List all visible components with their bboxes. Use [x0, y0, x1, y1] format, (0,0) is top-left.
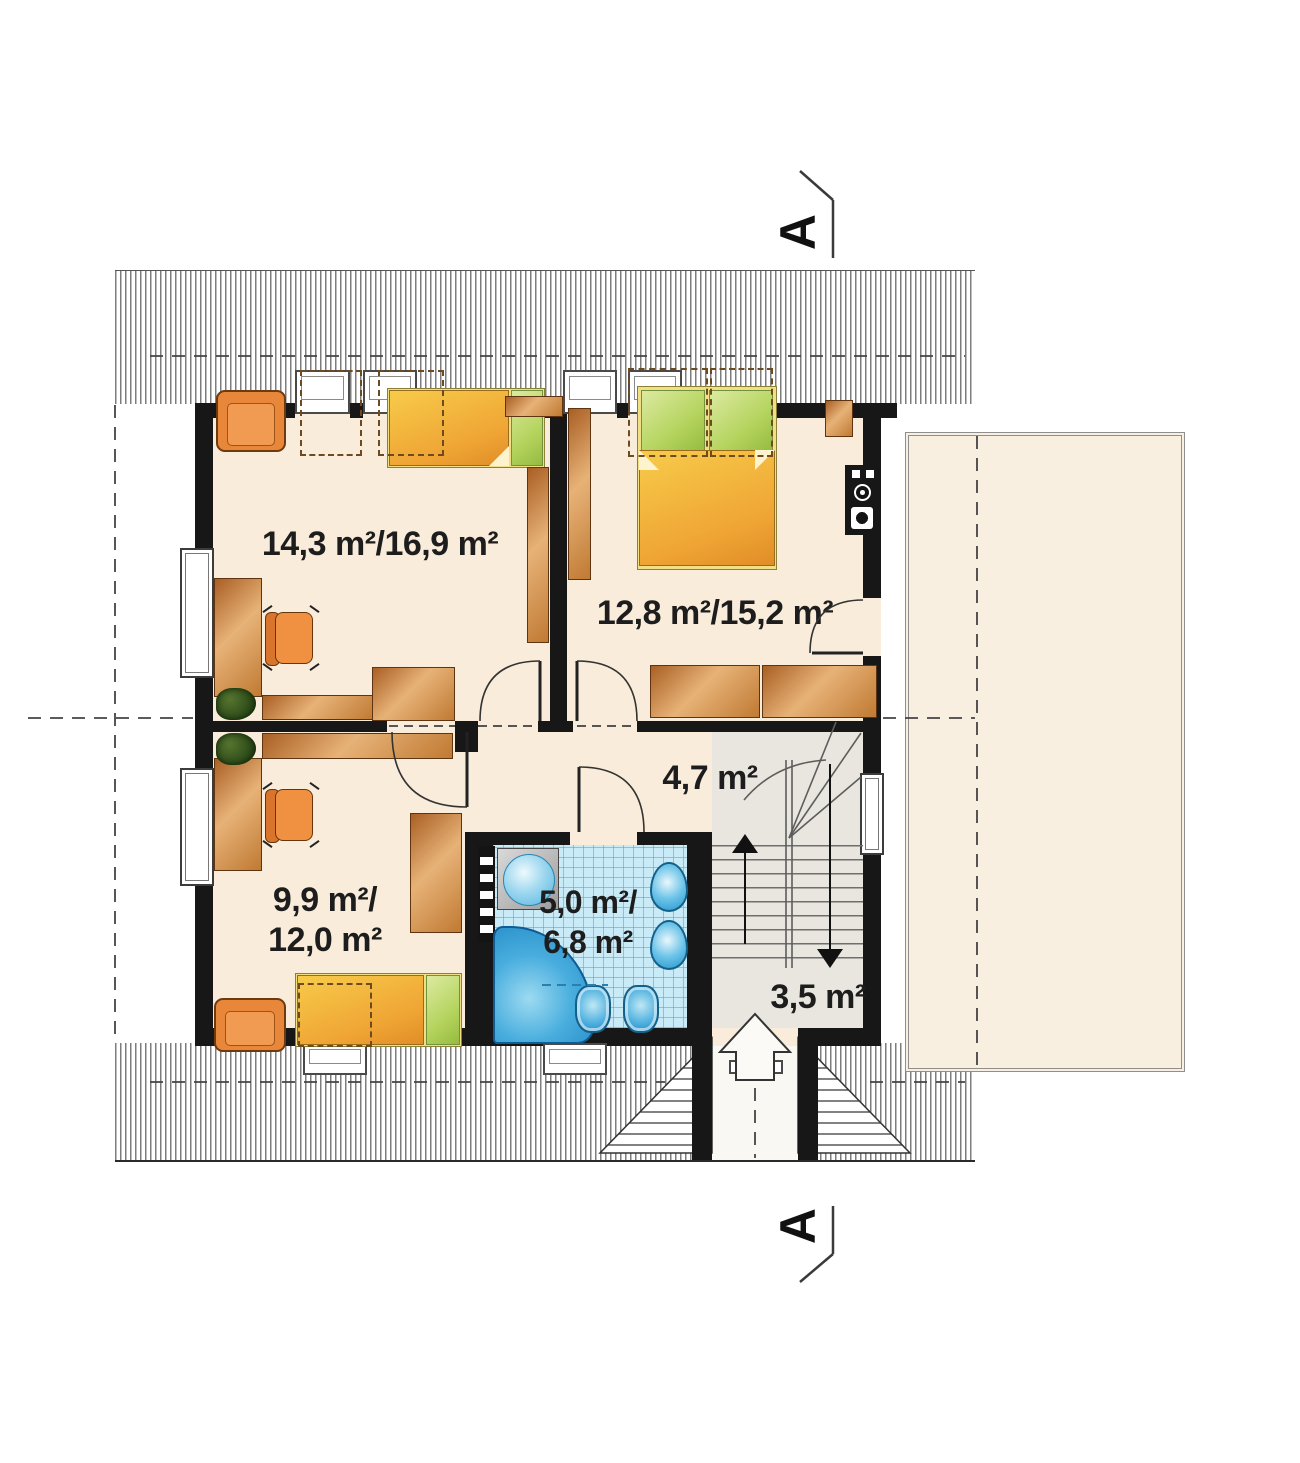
wall-segment — [455, 721, 478, 752]
armchair — [216, 390, 286, 452]
wall-segment — [195, 678, 213, 768]
wall-segment — [798, 1028, 818, 1160]
wardrobe — [568, 408, 591, 580]
section-marker-top — [800, 171, 833, 258]
wall-segment — [692, 1028, 712, 1160]
window-left-2 — [180, 768, 214, 886]
bed-pillow — [426, 975, 460, 1045]
blanket-fold — [489, 446, 509, 466]
wall-segment — [213, 721, 387, 732]
vent-grille-icon — [852, 470, 860, 478]
wall-segment — [195, 885, 213, 1046]
wall-segment — [538, 721, 573, 732]
skylight-projection — [378, 370, 444, 456]
wall-segment — [617, 403, 628, 418]
desk-return — [262, 695, 374, 720]
room-area-label: 3,5 m² — [758, 977, 878, 1017]
stove-connection-icon — [851, 507, 873, 529]
skylight-projection — [300, 370, 362, 456]
section-letter-top: A — [770, 214, 826, 250]
wardrobe — [410, 813, 462, 933]
wall-segment — [687, 832, 712, 1028]
shelf — [505, 396, 563, 417]
room-area-label: 9,9 m²/ 12,0 m² — [240, 880, 410, 960]
desk — [214, 758, 262, 871]
dresser — [762, 665, 877, 718]
skylight-projection — [710, 368, 773, 457]
armchair — [214, 998, 286, 1052]
wardrobe — [527, 467, 549, 643]
stair-treads — [712, 845, 863, 969]
skylight-projection — [628, 368, 708, 457]
toilet — [575, 985, 611, 1033]
skylight-projection — [298, 983, 372, 1047]
radiator — [478, 846, 495, 942]
wall-segment — [863, 403, 881, 465]
desk-return — [262, 733, 453, 759]
room-area-label: 12,8 m²/15,2 m² — [575, 593, 855, 633]
wall-segment — [195, 403, 213, 548]
window-left-1 — [180, 548, 214, 678]
wall-segment — [863, 535, 881, 598]
wall-segment — [637, 721, 881, 732]
bidet — [623, 985, 659, 1033]
room-area-label: 5,0 m²/ 6,8 m² — [508, 882, 668, 962]
sideboard — [372, 667, 455, 721]
wall-segment — [863, 855, 881, 1046]
office-chair — [265, 606, 317, 670]
floor-plan: 14,3 m²/16,9 m² 12,8 m²/15,2 m² 9,9 m²/ … — [0, 0, 1300, 1463]
flue-icon — [854, 484, 871, 501]
room-area-label: 4,7 m² — [645, 758, 775, 798]
wall-segment — [465, 832, 570, 845]
entry-threshold — [729, 1060, 783, 1074]
section-letter-bottom: A — [770, 1208, 826, 1244]
roof-window — [543, 1043, 607, 1075]
section-marker-bottom — [800, 1206, 833, 1282]
vent-grille-icon — [866, 470, 874, 478]
wall-segment — [550, 403, 567, 721]
roof-hatch-top — [115, 270, 975, 404]
dresser — [650, 665, 760, 718]
desk — [214, 578, 262, 697]
office-chair — [265, 783, 317, 847]
window-stair — [860, 773, 884, 855]
terrace — [905, 432, 1185, 1072]
nightstand — [825, 400, 853, 437]
roof-window — [303, 1043, 367, 1075]
room-area-label: 14,3 m²/16,9 m² — [250, 524, 510, 564]
